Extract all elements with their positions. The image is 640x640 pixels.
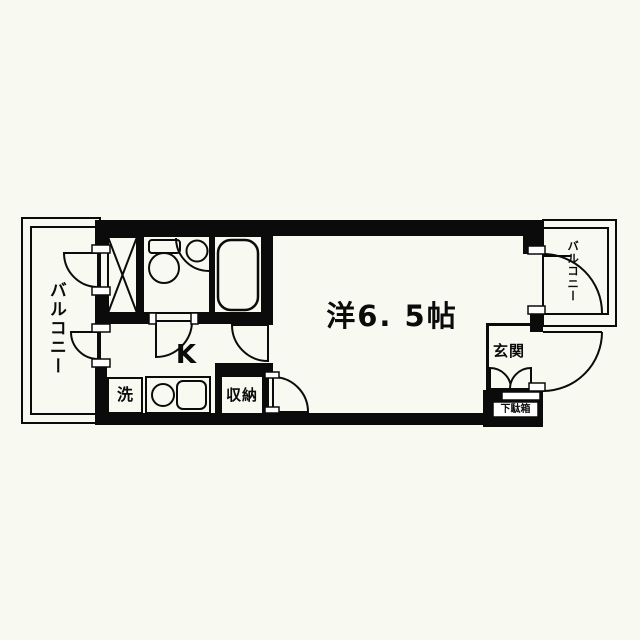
balcony-left-label: バルコニー bbox=[46, 281, 64, 376]
washer-label: 洗 bbox=[108, 387, 142, 404]
main-room-label: 洋6. 5帖 bbox=[282, 301, 502, 331]
toilet bbox=[149, 240, 180, 283]
storage-label: 収納 bbox=[220, 388, 264, 404]
shoe-cabinet-label: 下駄箱 bbox=[493, 403, 538, 417]
kitchen-label: K bbox=[164, 342, 208, 369]
bathtub bbox=[218, 240, 258, 310]
entrance-threshold bbox=[502, 392, 540, 400]
entrance-label: 玄関 bbox=[486, 344, 532, 360]
balcony-right-label: バルコニー bbox=[567, 240, 579, 303]
floor-plan-page: 洋6. 5帖 K 洗 収納 玄関 下駄箱 バルコニー バルコニー bbox=[0, 0, 640, 640]
